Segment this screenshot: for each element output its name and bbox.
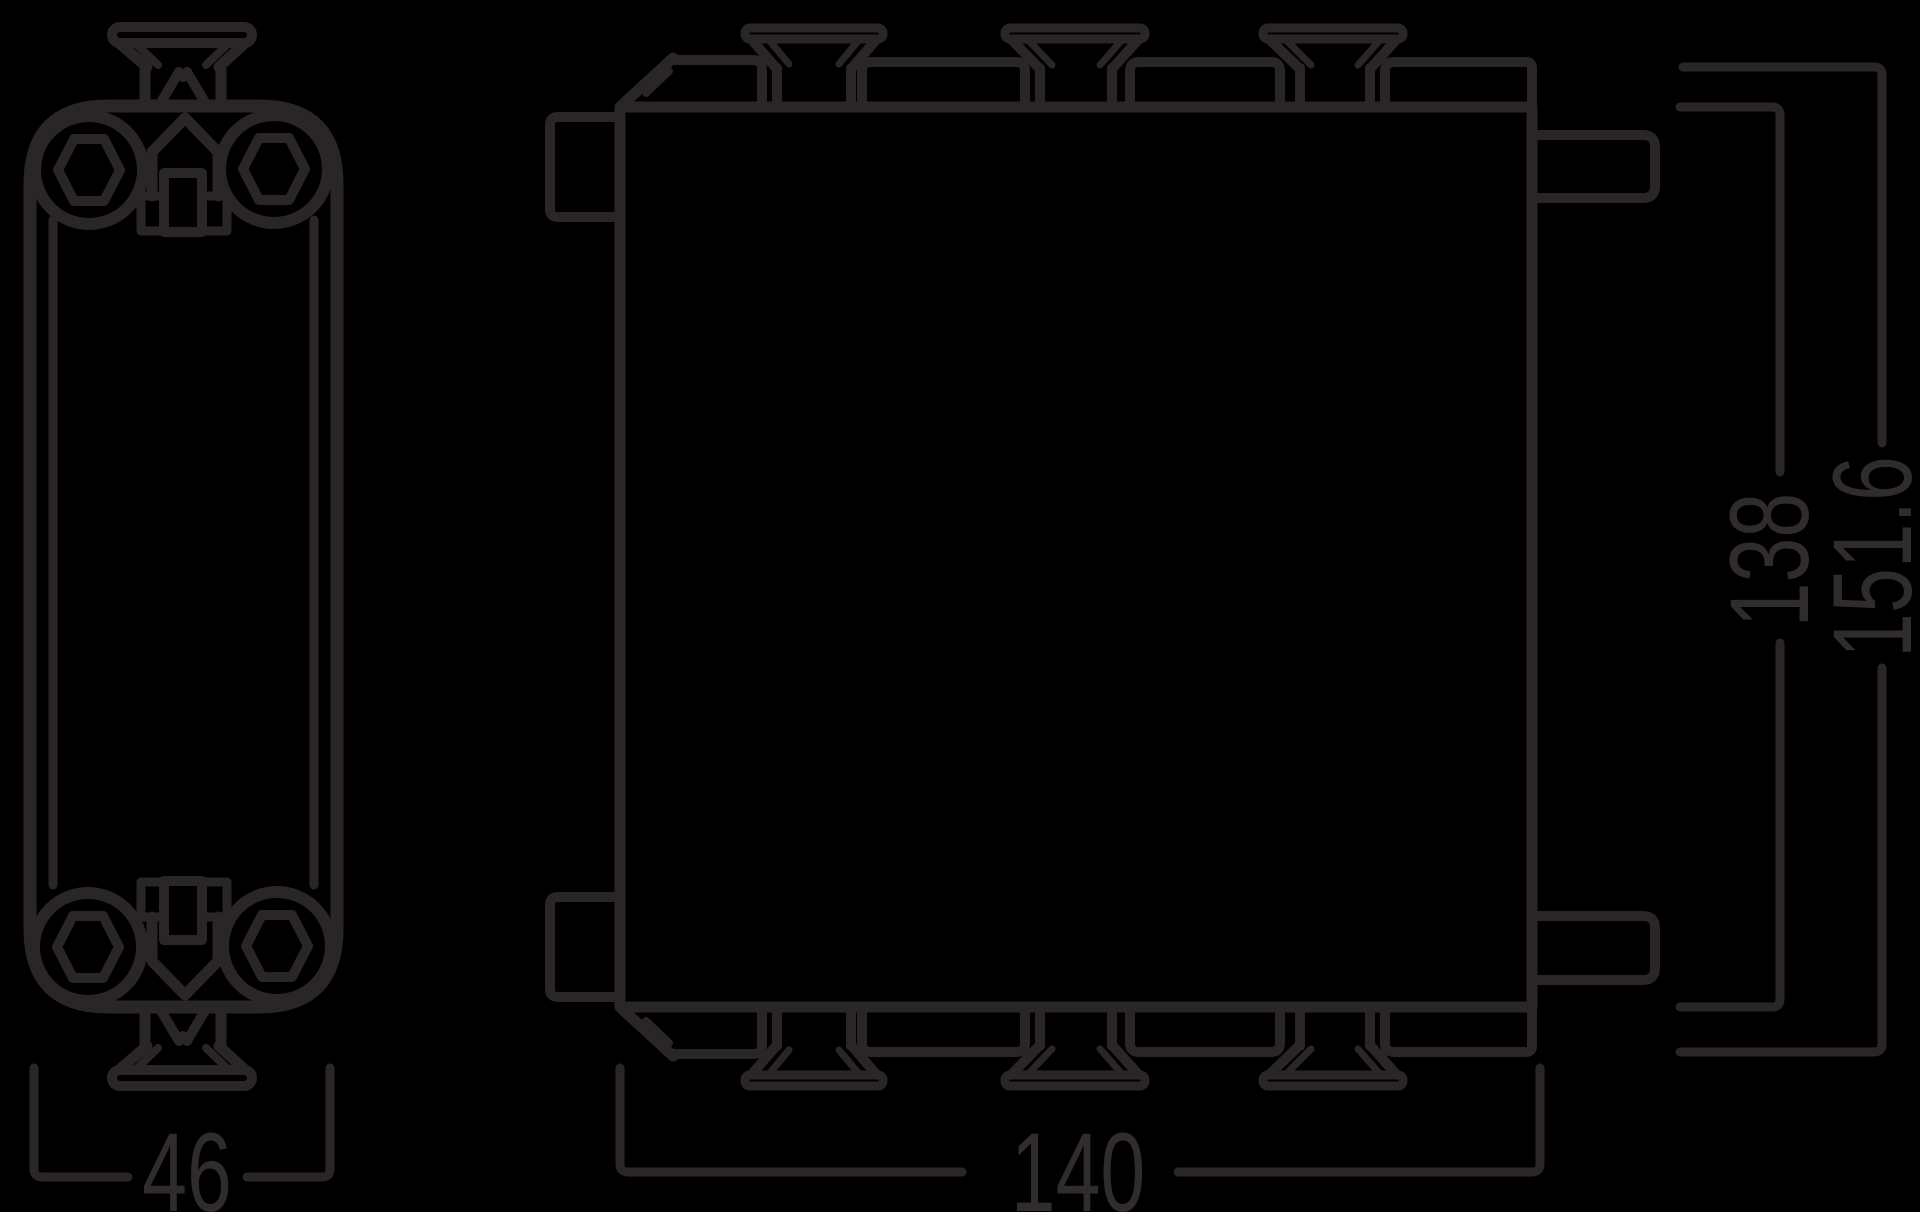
- front-right-tab-top: [1532, 135, 1655, 198]
- dimension-label-140: 140: [1011, 1110, 1146, 1212]
- front-left-tab-bottom: [550, 897, 620, 997]
- side-view: [30, 27, 337, 1086]
- side-top-clip: [112, 27, 252, 104]
- dimension-labels: 46 140 138 151.6: [142, 456, 1920, 1212]
- hex-plug-top-right: [243, 138, 305, 200]
- hex-plug-bottom-left: [57, 916, 119, 978]
- front-plate-outline: [620, 107, 1532, 1007]
- port-circle-bottom-right: [223, 892, 331, 1000]
- port-circle-top-right: [220, 115, 328, 223]
- front-top-clips: [745, 28, 1403, 106]
- drawing-canvas: 46 140 138 151.6: [0, 0, 1920, 1212]
- side-bottom-center-detail: [141, 881, 227, 995]
- side-bottom-clip: [112, 1009, 252, 1086]
- dimension-label-151-6: 151.6: [1810, 456, 1920, 658]
- front-right-tab-bottom: [1532, 916, 1655, 980]
- port-circle-bottom-left: [34, 893, 142, 1001]
- hex-plug-top-left: [58, 139, 120, 201]
- chamfer-top-left: [621, 58, 673, 106]
- side-body-outline: [30, 106, 337, 1007]
- front-left-tab-top: [550, 117, 620, 217]
- dimension-label-46: 46: [142, 1110, 232, 1212]
- side-top-center-detail: [141, 118, 227, 232]
- hex-plug-bottom-right: [246, 915, 308, 977]
- chamfer-bottom-left: [621, 1008, 673, 1056]
- technical-drawing: 46 140 138 151.6: [0, 0, 1920, 1212]
- front-bottom-clips: [745, 1008, 1403, 1086]
- front-view: [550, 28, 1655, 1086]
- port-circle-top-left: [35, 116, 143, 224]
